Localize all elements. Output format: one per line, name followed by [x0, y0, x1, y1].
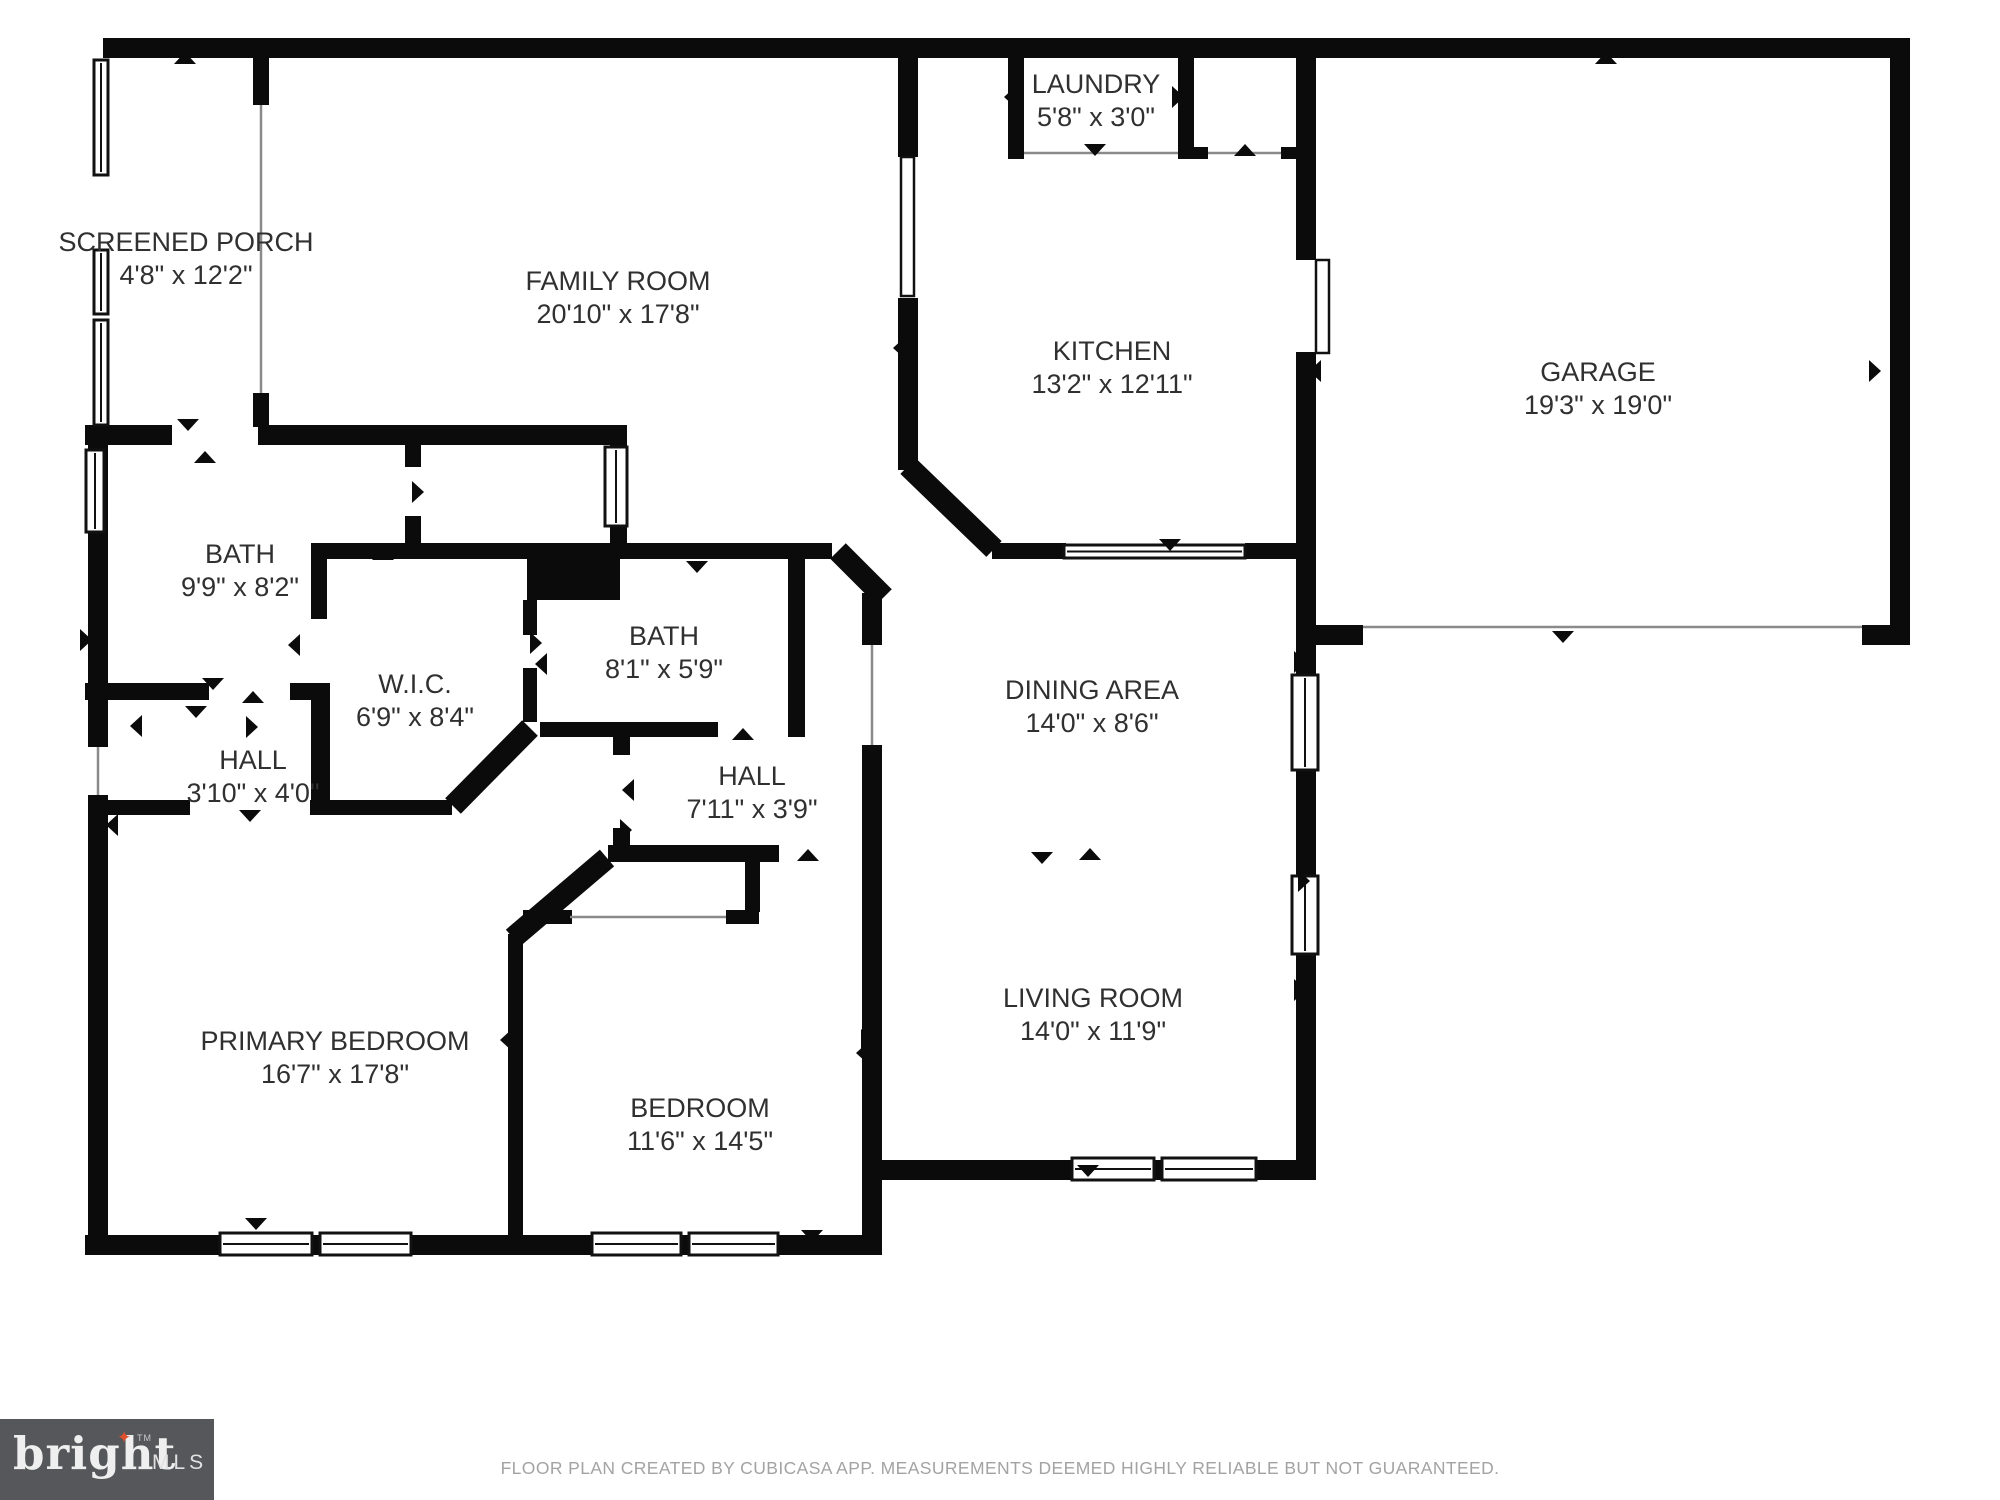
wall-segment — [898, 298, 918, 470]
door-leaf — [1316, 260, 1329, 353]
logo-suffix-text: MLS — [152, 1451, 207, 1475]
wall-segment — [523, 600, 537, 635]
wall-segment — [311, 559, 327, 619]
wall-segment — [898, 58, 918, 157]
door-direction-arrow — [412, 481, 424, 503]
wall-segment — [788, 557, 805, 724]
room-dimensions: 7'11" x 3'9" — [686, 794, 817, 824]
door-direction-arrow — [500, 1029, 512, 1051]
wall-segment — [745, 862, 760, 912]
wall-segment — [1296, 58, 1316, 260]
room-dimensions: 5'8" x 3'0" — [1037, 102, 1155, 132]
wall-segment — [1890, 38, 1910, 645]
room-label: LIVING ROOM — [1003, 983, 1183, 1013]
wall-segment — [1178, 58, 1194, 147]
wall-segment — [540, 722, 634, 737]
wall-segment — [1296, 768, 1316, 878]
door-direction-arrow — [1234, 144, 1256, 156]
wall-segment — [992, 543, 1066, 559]
room-label: BEDROOM — [630, 1093, 770, 1123]
wall-diagonal — [838, 551, 884, 597]
wall-segment — [1178, 147, 1194, 159]
wall-segment — [726, 910, 759, 924]
door-direction-arrow — [239, 810, 261, 822]
footer-disclaimer: FLOOR PLAN CREATED BY CUBICASA APP. MEAS… — [0, 1458, 2000, 1479]
wall-segment — [788, 722, 805, 737]
room-dimensions: 13'2" x 12'11" — [1031, 369, 1192, 399]
door-direction-arrow — [797, 849, 819, 861]
wall-segment — [253, 58, 269, 105]
door-direction-arrow — [1079, 848, 1101, 860]
room-label: DINING AREA — [1005, 675, 1179, 705]
room-label: SCREENED PORCH — [58, 227, 313, 257]
wall-segment — [527, 559, 620, 600]
door-direction-arrow — [130, 715, 142, 737]
wall-segment — [310, 800, 452, 815]
door-direction-arrow — [1552, 631, 1574, 643]
room-dimensions: 3'10" x 4'0" — [186, 778, 319, 808]
door-direction-arrow — [246, 716, 258, 738]
logo-trademark: TM — [137, 1433, 152, 1443]
room-label: LAUNDRY — [1032, 69, 1161, 99]
door-direction-arrow — [732, 728, 754, 740]
wall-segment — [613, 737, 630, 755]
wall-segment — [258, 425, 627, 445]
wall-segment — [634, 722, 718, 737]
room-dimensions: 16'7" x 17'8" — [261, 1059, 409, 1089]
wall-segment — [103, 38, 1910, 58]
wall-segment — [1296, 352, 1316, 677]
room-label: BATH — [205, 539, 275, 569]
door-direction-arrow — [1031, 852, 1053, 864]
room-label: W.I.C. — [378, 669, 452, 699]
wall-diagonal — [908, 466, 994, 549]
wall-segment — [85, 425, 172, 445]
room-label: FAMILY ROOM — [525, 266, 710, 296]
brightmls-logo: bright ✦ TM MLS — [0, 1419, 214, 1500]
room-label: BATH — [629, 621, 699, 651]
room-label: KITCHEN — [1053, 336, 1172, 366]
door-direction-arrow — [686, 561, 708, 573]
wall-segment — [1862, 625, 1910, 645]
room-dimensions: 11'6" x 14'5" — [627, 1126, 773, 1156]
door-direction-arrow — [1869, 360, 1881, 382]
wall-segment — [882, 1160, 1074, 1180]
wall-segment — [1245, 543, 1296, 559]
room-dimensions: 20'10" x 17'8" — [536, 299, 699, 329]
room-dimensions: 19'3" x 19'0" — [1524, 390, 1672, 420]
wall-segment — [411, 1235, 592, 1255]
wall-segment — [1193, 147, 1208, 159]
wall-segment — [1315, 625, 1363, 645]
room-label: PRIMARY BEDROOM — [200, 1026, 469, 1056]
wall-segment — [290, 683, 330, 700]
room-dimensions: 8'1" x 5'9" — [605, 654, 723, 684]
room-dimensions: 9'9" x 8'2" — [181, 572, 299, 602]
wall-segment — [405, 442, 421, 467]
floor-plan-canvas: SCREENED PORCH4'8" x 12'2"FAMILY ROOM20'… — [0, 0, 2000, 1500]
wall-segment — [523, 668, 537, 722]
room-dimensions: 4'8" x 12'2" — [119, 260, 252, 290]
wall-segment — [1281, 147, 1296, 159]
wall-segment — [85, 683, 209, 700]
door-direction-arrow — [288, 634, 300, 656]
star-icon: ✦ — [117, 1428, 131, 1448]
room-label: HALL — [718, 761, 786, 791]
wall-segment — [108, 800, 190, 815]
room-dimensions: 14'0" x 8'6" — [1025, 708, 1158, 738]
door-leaf — [901, 157, 914, 296]
wall-segment — [508, 934, 523, 1235]
wall-diagonal — [513, 858, 607, 938]
room-dimensions: 6'9" x 8'4" — [356, 702, 474, 732]
door-direction-arrow — [177, 419, 199, 431]
door-direction-arrow — [194, 451, 216, 463]
wall-segment — [1008, 147, 1024, 159]
room-label: GARAGE — [1540, 357, 1656, 387]
door-direction-arrow — [185, 706, 207, 718]
door-direction-arrow — [242, 691, 264, 703]
room-dimensions: 14'0" x 11'9" — [1020, 1016, 1166, 1046]
wall-segment — [88, 795, 108, 1255]
door-direction-arrow — [530, 632, 542, 654]
wall-segment — [1256, 1160, 1316, 1180]
room-label: HALL — [219, 745, 287, 775]
wall-segment — [253, 393, 269, 427]
wall-diagonal — [453, 728, 530, 806]
door-direction-arrow — [245, 1218, 267, 1230]
door-direction-arrow — [622, 779, 634, 801]
floor-plan-page: SCREENED PORCH4'8" x 12'2"FAMILY ROOM20'… — [0, 0, 2000, 1500]
